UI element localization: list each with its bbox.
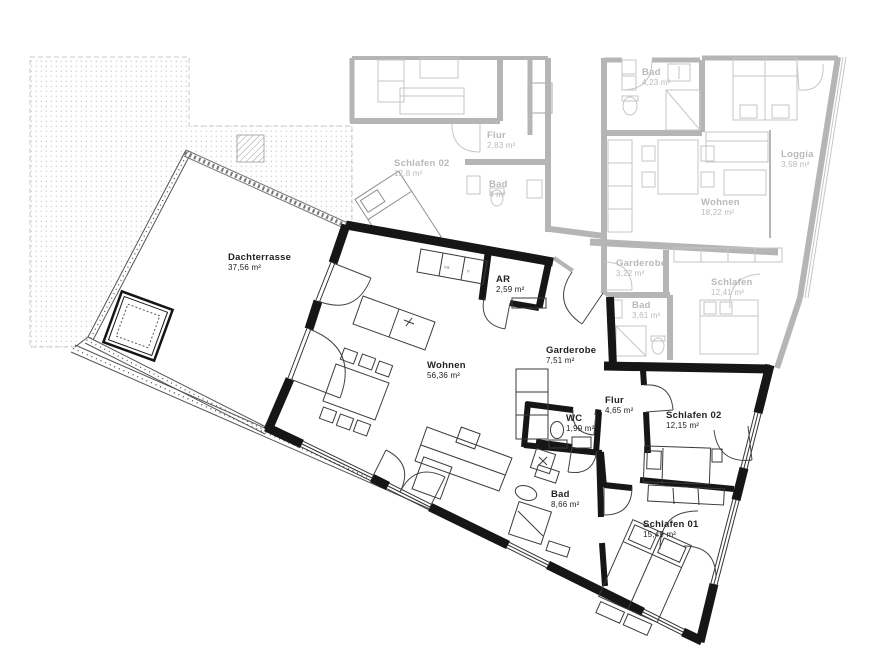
floor-plan-page: ea. e Dachterrasse37,56 m²Wohnen56,36 m²… [0, 0, 889, 672]
main-apartment: ea. e [85, 150, 770, 642]
apartment-floor [268, 222, 770, 640]
floor-plan-drawing: ea. e [0, 0, 889, 672]
